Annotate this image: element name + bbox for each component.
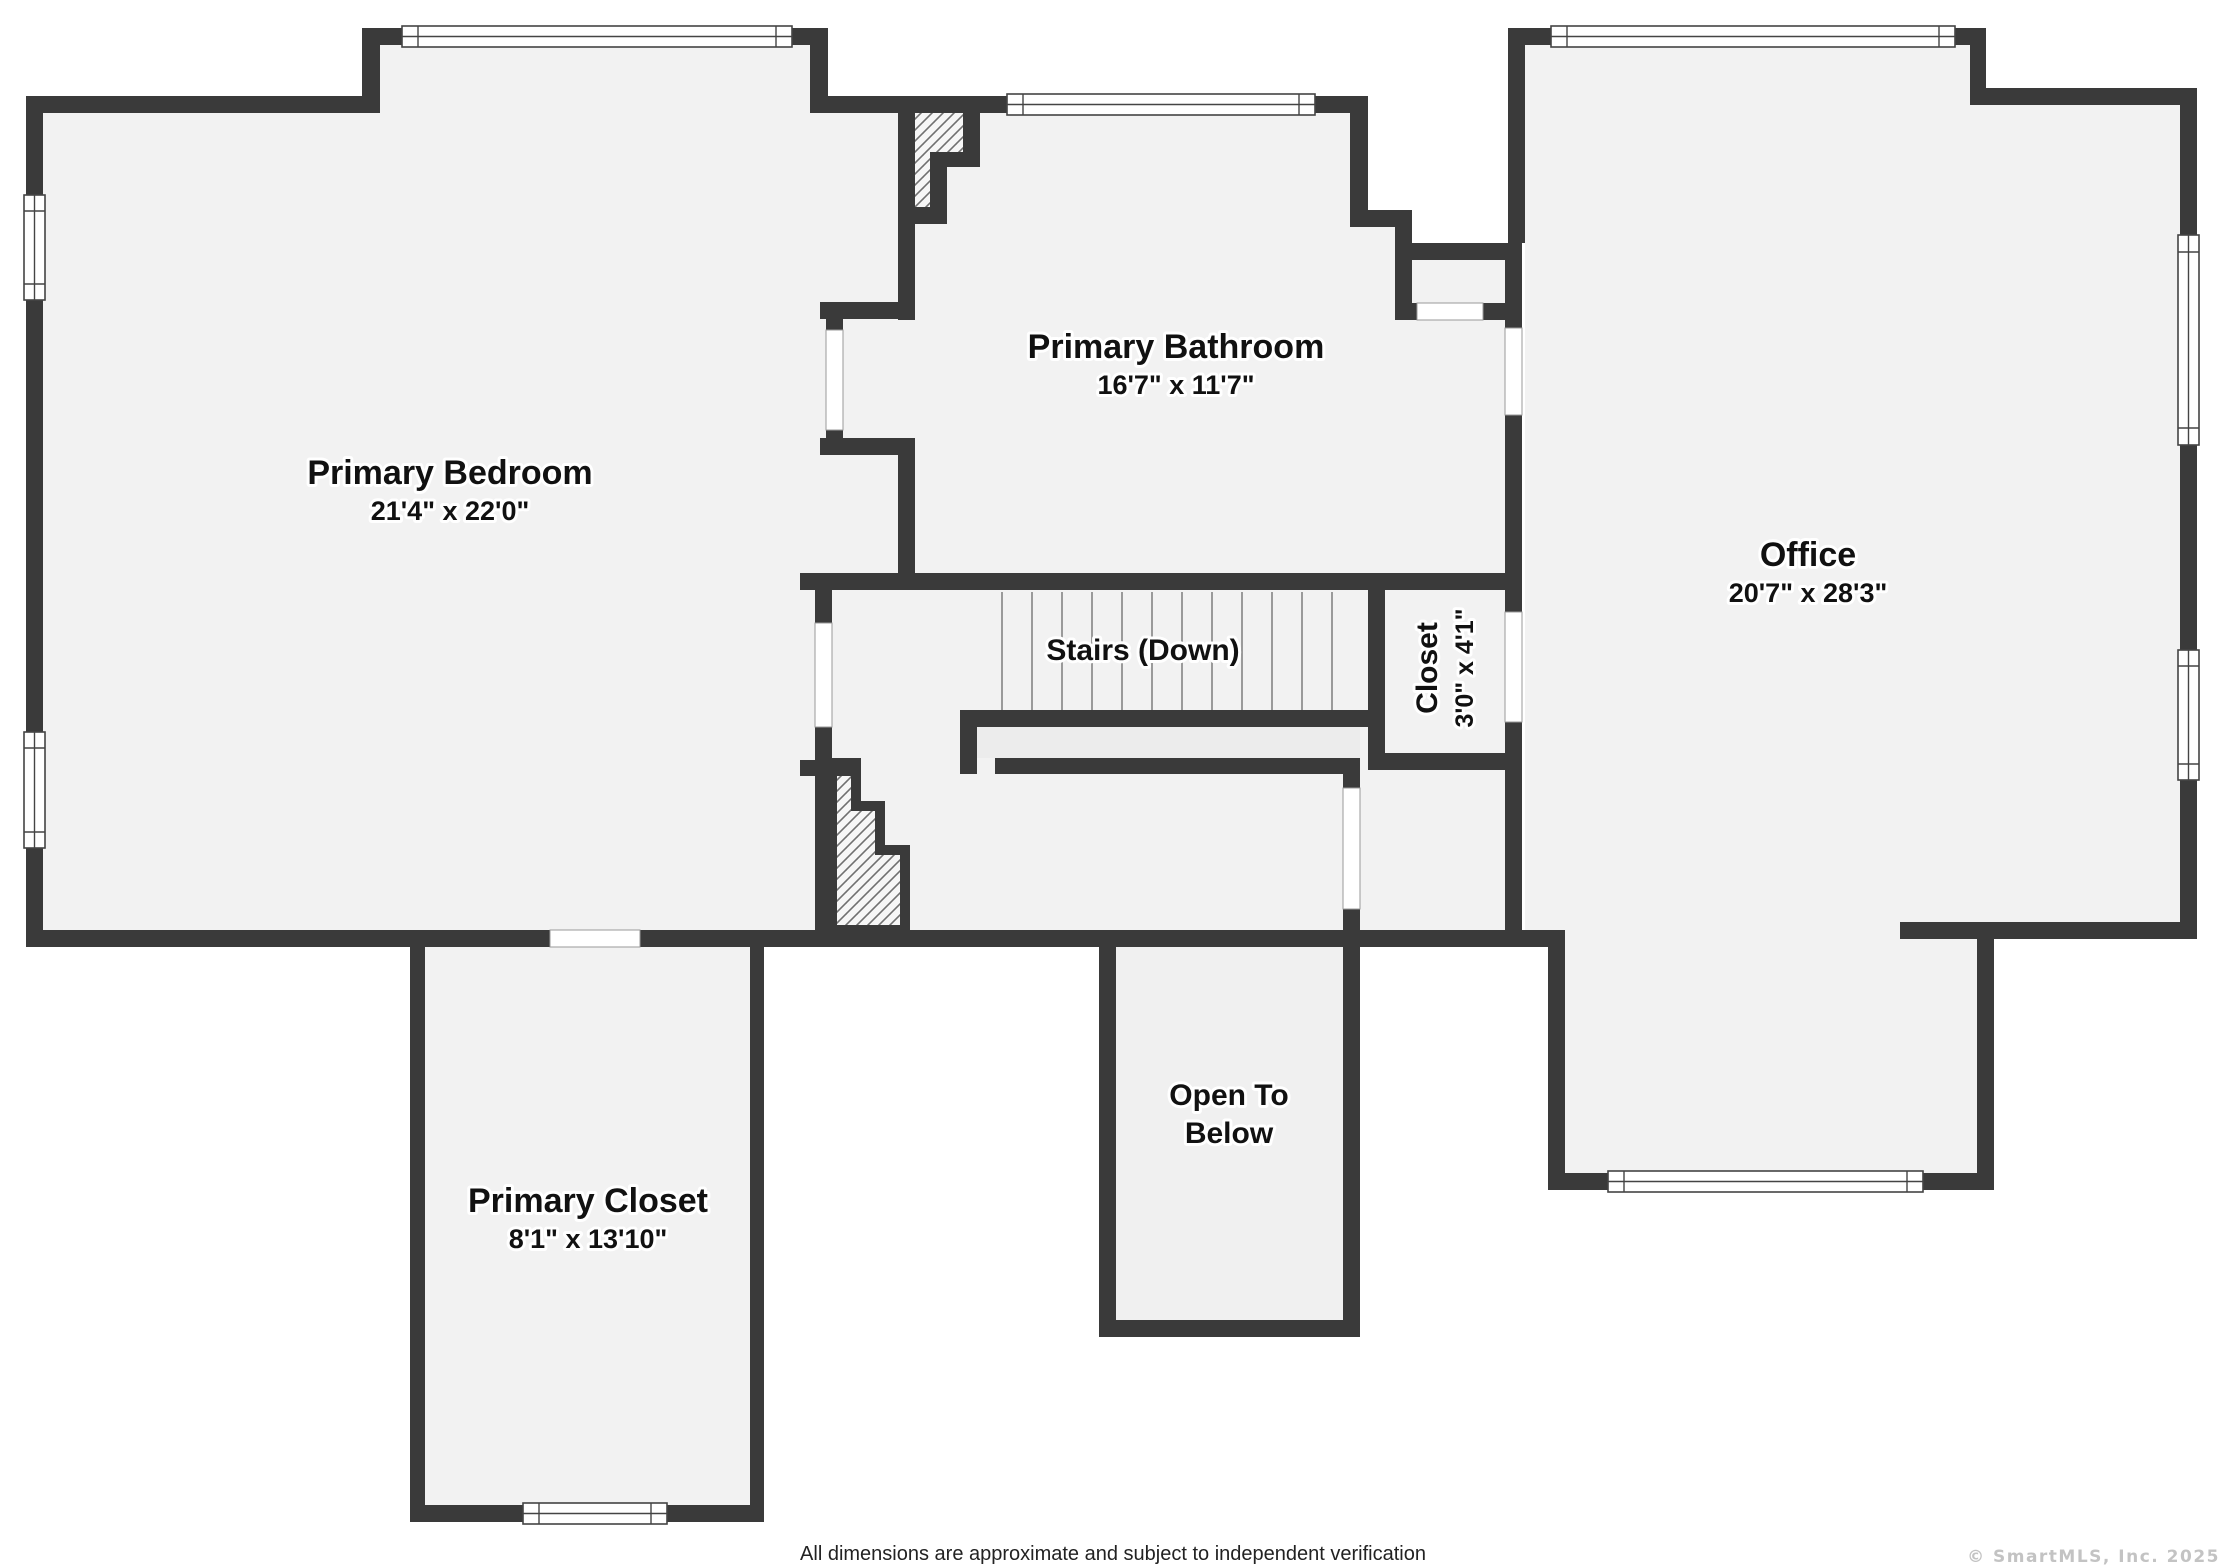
- wall-hatch2-cap: [832, 763, 858, 776]
- wall-niche-top: [1395, 243, 1522, 260]
- wall-shaft-left: [1099, 947, 1116, 1337]
- label-primary-bathroom-dims: 16'7" x 11'7": [1097, 370, 1254, 400]
- window-bumpout-bottom: [1608, 1171, 1923, 1192]
- wall-office-bottom-right: [1900, 922, 2195, 939]
- door-bedroom-to-hall: [815, 623, 832, 727]
- door-bedroom-to-primary-closet: [550, 930, 640, 947]
- wall-chimney-east-upper: [963, 113, 980, 152]
- floor-bedroom-left: [43, 113, 362, 930]
- window-office-right-upper: [2178, 235, 2199, 445]
- wall-hall-door-jamb-top: [815, 590, 832, 623]
- window-office-top: [1551, 26, 1955, 47]
- wall-office-left-upper: [1508, 28, 1525, 243]
- window-bathroom-top: [1007, 94, 1315, 115]
- hatch-chimney-top-narrow: [915, 113, 930, 207]
- floor-stair-landing: [977, 727, 1360, 758]
- wall-office-right: [2180, 88, 2197, 939]
- window-bedroom-left-upper: [24, 195, 45, 300]
- wall-bath-west-lower: [898, 455, 915, 590]
- wall-office-left-lower: [1505, 722, 1522, 939]
- door-closet-to-office: [1505, 612, 1522, 722]
- wall-bathroom-topright-v: [1350, 96, 1368, 227]
- window-office-right-lower: [2178, 650, 2199, 780]
- wall-bottom-main-east: [640, 930, 1548, 947]
- floor-office-right: [1970, 105, 2180, 922]
- footer-disclaimer: All dimensions are approximate and subje…: [800, 1543, 1426, 1565]
- floorplan-svg: Primary Bedroom 21'4" x 22'0" Primary Ba…: [0, 0, 2227, 1568]
- wall-pcloset-left: [410, 947, 425, 1522]
- wall-bottom-main-west: [26, 930, 550, 947]
- wall-niche-bottom-left-stub: [1395, 303, 1417, 320]
- wall-bath-west-jog-lower: [820, 438, 915, 455]
- wall-vestibule-jamb-top: [1343, 770, 1360, 788]
- label-stairs-down: Stairs (Down): [1046, 634, 1239, 667]
- door-hall-to-vestibule: [1343, 788, 1360, 909]
- window-pcloset-bottom: [523, 1503, 667, 1524]
- wall-niche-right: [1505, 243, 1522, 328]
- label-office: Office: [1760, 536, 1856, 574]
- label-open-to-below-2: Below: [1185, 1117, 1274, 1150]
- wall-shaft-bottom: [1099, 1320, 1360, 1337]
- label-primary-bedroom-dims: 21'4" x 22'0": [371, 496, 530, 526]
- wall-bedroom-top-left: [26, 96, 380, 113]
- watermark-smartmls: © SmartMLS, Inc. 2025: [1967, 1547, 2220, 1567]
- wall-closet-bottom: [1385, 753, 1522, 770]
- floor-office-bumpout: [1565, 900, 1977, 1173]
- wall-shaft-right: [1343, 947, 1360, 1337]
- window-bedroom-top: [402, 26, 792, 47]
- wall-chimney-step: [930, 152, 980, 167]
- label-open-to-below-1: Open To: [1169, 1079, 1288, 1112]
- wall-pcloset-right: [750, 947, 764, 1522]
- label-primary-closet-dims: 8'1" x 13'10": [509, 1224, 668, 1254]
- door-bedroom-to-bathroom: [826, 330, 843, 430]
- wall-chimney-east-lower: [930, 167, 947, 207]
- label-closet: Closet: [1411, 622, 1444, 714]
- wall-chimney-bottom: [898, 207, 947, 224]
- wall-bath-west-jog-upper: [820, 302, 915, 319]
- opening-bathroom-to-office: [1505, 328, 1522, 415]
- floorplan-page: Primary Bedroom 21'4" x 22'0" Primary Ba…: [0, 0, 2227, 1568]
- door-niche: [1417, 303, 1483, 320]
- wall-bumpout-right: [1977, 939, 1994, 1190]
- wall-office-left-mid: [1505, 415, 1522, 612]
- wall-stairs-bottom: [960, 710, 1385, 727]
- wall-bath-door-jamb-top: [826, 319, 843, 330]
- wall-landing-rail: [995, 758, 1360, 774]
- floor-office-left: [1525, 45, 1970, 930]
- label-primary-closet: Primary Closet: [468, 1182, 708, 1220]
- floor-bathroom-east-strip: [1368, 227, 1395, 590]
- label-closet-dims: 3'0" x 4'1": [1451, 608, 1479, 727]
- wall-stairs-top: [800, 573, 1522, 590]
- wall-niche-bottom-right-stub: [1483, 303, 1505, 320]
- wall-office-upper-right: [1970, 88, 2195, 105]
- wall-stairs-corner-stub: [960, 710, 977, 774]
- label-office-dims: 20'7" x 28'3": [1729, 578, 1888, 608]
- wall-closet-left: [1368, 573, 1385, 770]
- wall-bumpout-left: [1548, 930, 1565, 1173]
- label-primary-bathroom: Primary Bathroom: [1028, 328, 1325, 366]
- window-bedroom-left-lower: [24, 732, 45, 848]
- wall-hatch2-west: [815, 776, 832, 947]
- label-primary-bedroom: Primary Bedroom: [307, 454, 592, 492]
